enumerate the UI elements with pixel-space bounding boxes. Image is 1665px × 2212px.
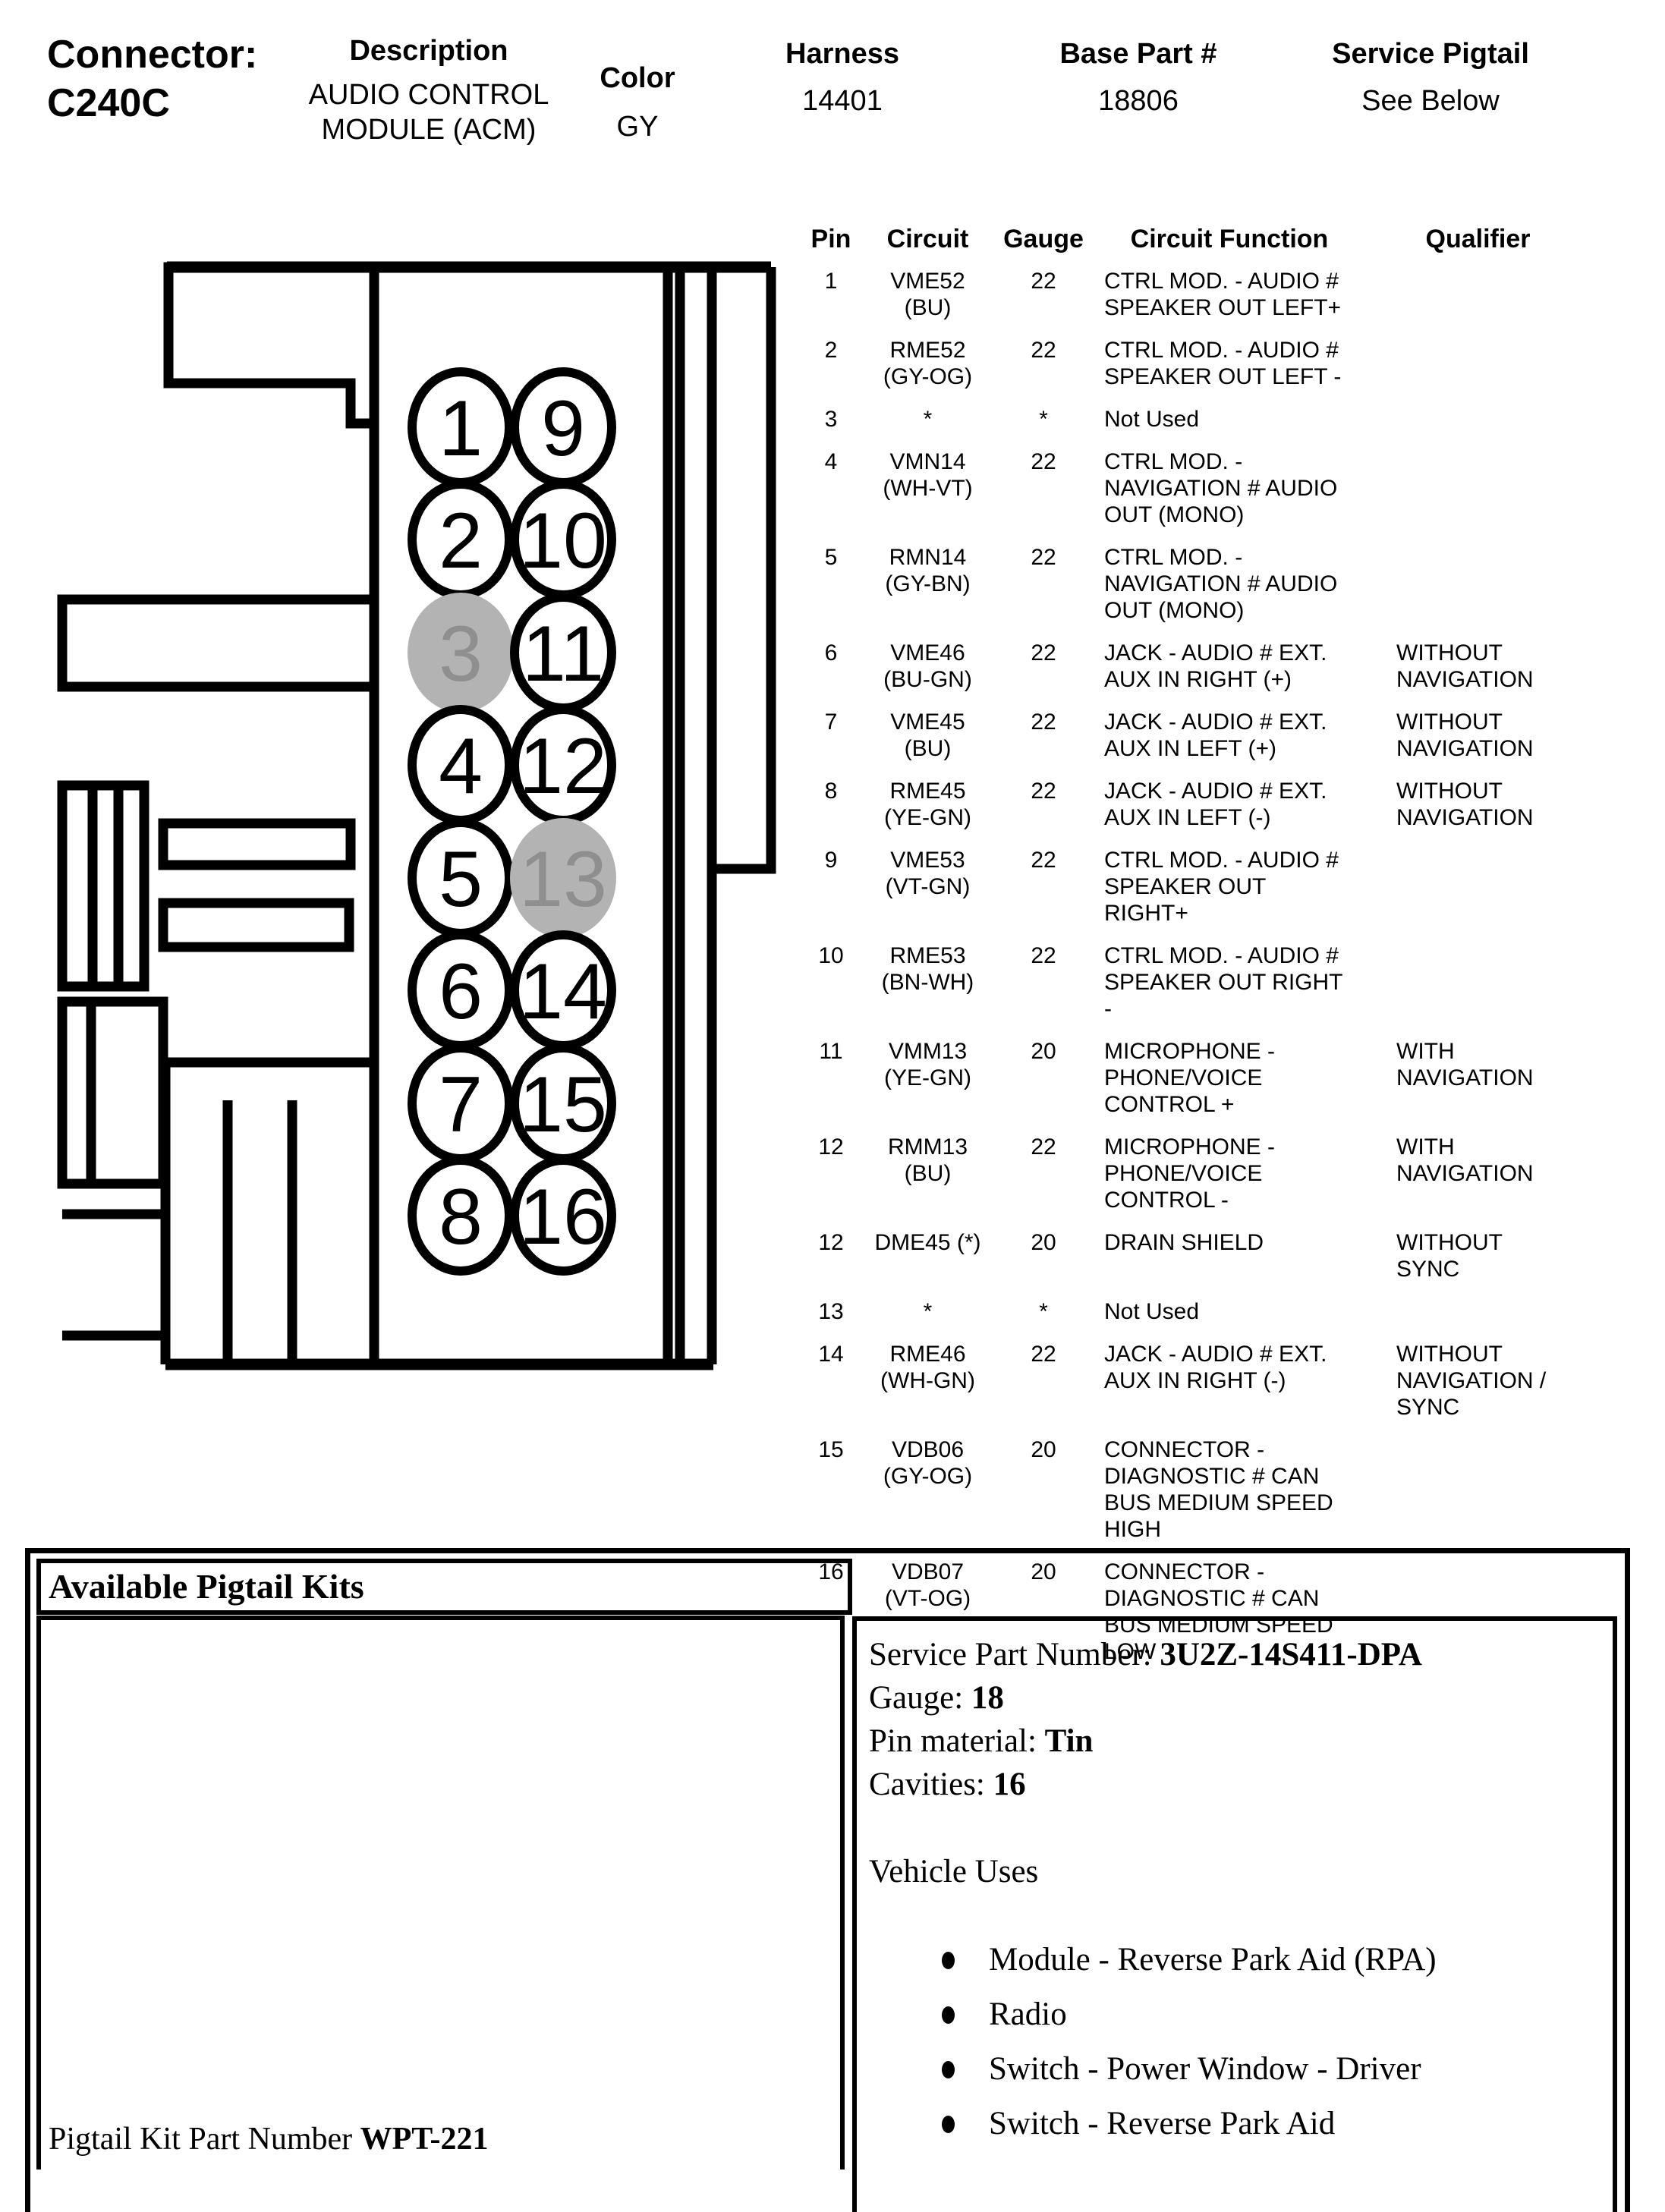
service-pigtail-value: See Below [1313, 83, 1548, 118]
vehicle-use-item: Radio [942, 1993, 1605, 2036]
header-field-service-pigtail: Service Pigtail See Below [1313, 36, 1548, 118]
pin-cell: 5 [801, 544, 861, 624]
pin-cell: 4 [801, 448, 861, 528]
pin-cell: 15 [801, 1436, 861, 1543]
function-cell: MICROPHONE - PHONE/VOICE CONTROL - [1104, 1134, 1355, 1213]
pin-number: 3 [439, 610, 483, 698]
harness-label: Harness [744, 36, 941, 71]
pin-cell: 2 [801, 337, 861, 390]
pigtail-kit-part-number-line: Pigtail Kit Part Number WPT-221 [49, 2121, 488, 2157]
qualifier-cell [1396, 337, 1560, 390]
gauge-cell: * [994, 406, 1093, 433]
color-value: GY [577, 109, 698, 144]
pin-cell: 8 [801, 778, 861, 831]
kit-part-number-value: WPT-221 [360, 2122, 489, 2157]
connector-title: Connector: C240C [47, 30, 257, 127]
detail-label: Cavities: [869, 1767, 993, 1802]
circuit-cell: VDB06(GY-OG) [861, 1436, 994, 1543]
pin-cell: 3 [801, 406, 861, 433]
base-part-label: Base Part # [1024, 36, 1252, 71]
pin-number: 14 [519, 948, 607, 1036]
col-header-gauge: Gauge [994, 226, 1093, 253]
function-cell: JACK - AUDIO # EXT. AUX IN LEFT (-) [1104, 778, 1355, 831]
detail-label: Pin material: [869, 1723, 1045, 1759]
pin-number: 8 [439, 1173, 483, 1261]
pin-number: 16 [519, 1173, 607, 1261]
gauge-cell: 22 [994, 448, 1093, 528]
pin-number: 10 [519, 497, 607, 585]
header-field-description: Description AUDIO CONTROL MODULE (ACM) [304, 33, 554, 147]
pin-cell: 6 [801, 640, 861, 693]
vehicle-use-item: Module - Reverse Park Aid (RPA) [942, 1939, 1605, 1981]
detail-value: 16 [993, 1767, 1026, 1802]
pin-table-row: 15VDB06(GY-OG)20CONNECTOR - DIAGNOSTIC #… [801, 1436, 1662, 1543]
qualifier-cell: WITHOUT NAVIGATION [1396, 778, 1560, 831]
header-field-harness: Harness 14401 [744, 36, 941, 118]
gauge-cell: 22 [994, 709, 1093, 762]
circuit-cell: * [861, 406, 994, 433]
circuit-cell: RME52(GY-OG) [861, 337, 994, 390]
pin-table-row: 2RME52(GY-OG)22CTRL MOD. - AUDIO # SPEAK… [801, 337, 1662, 390]
description-label: Description [304, 33, 554, 68]
pin-cavity-group: 12345678910111213141516 [408, 372, 616, 1271]
function-cell: CTRL MOD. - AUDIO # SPEAKER OUT RIGHT - [1104, 942, 1355, 1022]
qualifier-cell: WITHOUT NAVIGATION / SYNC [1396, 1341, 1560, 1421]
function-cell: CONNECTOR - DIAGNOSTIC # CAN BUS MEDIUM … [1104, 1436, 1355, 1543]
function-cell: Not Used [1104, 1298, 1355, 1325]
pin-cell: 7 [801, 709, 861, 762]
vehicle-use-item: Switch - Reverse Park Aid [942, 2103, 1605, 2145]
qualifier-cell [1396, 1436, 1560, 1543]
service-detail-line: Pin material: Tin [869, 1720, 1605, 1763]
col-header-pin: Pin [801, 226, 861, 253]
detail-label: Service Part Number: [869, 1637, 1160, 1672]
function-cell: JACK - AUDIO # EXT. AUX IN RIGHT (-) [1104, 1341, 1355, 1421]
harness-value: 14401 [744, 83, 941, 118]
service-detail-line: Gauge: 18 [869, 1676, 1605, 1720]
qualifier-cell [1396, 544, 1560, 624]
col-header-function: Circuit Function [1104, 226, 1355, 253]
header-field-color: Color GY [577, 61, 698, 144]
connector-label: Connector: [47, 30, 257, 79]
circuit-cell: * [861, 1298, 994, 1325]
circuit-cell: RMM13(BU) [861, 1134, 994, 1213]
function-cell: CTRL MOD. - NAVIGATION # AUDIO OUT (MONO… [1104, 544, 1355, 624]
function-cell: CTRL MOD. - AUDIO # SPEAKER OUT RIGHT+ [1104, 847, 1355, 927]
pin-number: 4 [439, 722, 483, 810]
qualifier-cell: WITHOUT NAVIGATION [1396, 640, 1560, 693]
circuit-cell: VMM13(YE-GN) [861, 1038, 994, 1118]
gauge-cell: 22 [994, 778, 1093, 831]
col-header-qualifier: Qualifier [1396, 226, 1560, 253]
circuit-cell: RME46(WH-GN) [861, 1341, 994, 1421]
pin-table-row: 1VME52(BU)22CTRL MOD. - AUDIO # SPEAKER … [801, 268, 1662, 321]
function-cell: CTRL MOD. - NAVIGATION # AUDIO OUT (MONO… [1104, 448, 1355, 528]
pin-number: 11 [522, 610, 604, 698]
detail-value: Tin [1045, 1723, 1094, 1759]
pin-table-row: 11VMM13(YE-GN)20MICROPHONE - PHONE/VOICE… [801, 1038, 1662, 1118]
qualifier-cell: WITH NAVIGATION [1396, 1038, 1560, 1118]
function-cell: JACK - AUDIO # EXT. AUX IN RIGHT (+) [1104, 640, 1355, 693]
gauge-cell: 22 [994, 544, 1093, 624]
pin-number: 2 [439, 497, 483, 585]
circuit-cell: RMN14(GY-BN) [861, 544, 994, 624]
pin-table-body: 1VME52(BU)22CTRL MOD. - AUDIO # SPEAKER … [801, 268, 1662, 1665]
pin-number: 13 [519, 835, 607, 924]
gauge-cell: 22 [994, 942, 1093, 1022]
pin-cell: 12 [801, 1229, 861, 1282]
pin-number: 6 [439, 948, 483, 1036]
circuit-cell: VMN14(WH-VT) [861, 448, 994, 528]
detail-label: Gauge: [869, 1680, 971, 1716]
qualifier-cell [1396, 268, 1560, 321]
circuit-cell: DME45 (*) [861, 1229, 994, 1282]
gauge-cell: 22 [994, 640, 1093, 693]
service-detail-line: Service Part Number: 3U2Z-14S411-DPA [869, 1633, 1605, 1676]
pigtail-kits-box: Pigtail Kit Part Number WPT-221 [36, 1616, 845, 2170]
qualifier-cell [1396, 1298, 1560, 1325]
color-label: Color [577, 61, 698, 96]
available-pigtail-kits-title: Available Pigtail Kits [36, 1559, 852, 1615]
qualifier-cell [1396, 942, 1560, 1022]
pin-table-row: 12RMM13(BU)22MICROPHONE - PHONE/VOICE CO… [801, 1134, 1662, 1213]
detail-value: 18 [971, 1680, 1004, 1716]
gauge-cell: 20 [994, 1229, 1093, 1282]
circuit-cell: VME46(BU-GN) [861, 640, 994, 693]
vehicle-uses-title: Vehicle Uses [869, 1850, 1605, 1893]
pin-cell: 10 [801, 942, 861, 1022]
qualifier-cell [1396, 448, 1560, 528]
gauge-cell: 22 [994, 1134, 1093, 1213]
service-part-box: Service Part Number: 3U2Z-14S411-DPAGaug… [852, 1616, 1617, 2212]
qualifier-cell: WITHOUT NAVIGATION [1396, 709, 1560, 762]
circuit-cell: VME45(BU) [861, 709, 994, 762]
qualifier-cell: WITH NAVIGATION [1396, 1134, 1560, 1213]
pin-number: 12 [519, 722, 607, 810]
gauge-cell: 20 [994, 1038, 1093, 1118]
pin-number: 15 [519, 1061, 607, 1149]
pin-table-row: 12DME45 (*)20DRAIN SHIELDWITHOUT SYNC [801, 1229, 1662, 1282]
pin-table-row: 5RMN14(GY-BN)22CTRL MOD. - NAVIGATION # … [801, 544, 1662, 624]
pin-number: 9 [541, 385, 585, 473]
function-cell: JACK - AUDIO # EXT. AUX IN LEFT (+) [1104, 709, 1355, 762]
gauge-cell: 22 [994, 337, 1093, 390]
connector-id: C240C [47, 79, 257, 127]
gauge-cell: 22 [994, 847, 1093, 927]
pin-cell: 1 [801, 268, 861, 321]
pin-table-row: 9VME53(VT-GN)22CTRL MOD. - AUDIO # SPEAK… [801, 847, 1662, 927]
gauge-cell: * [994, 1298, 1093, 1325]
function-cell: CTRL MOD. - AUDIO # SPEAKER OUT LEFT+ [1104, 268, 1355, 321]
pin-cell: 11 [801, 1038, 861, 1118]
description-value: AUDIO CONTROL MODULE (ACM) [304, 77, 554, 147]
header-field-base-part: Base Part # 18806 [1024, 36, 1252, 118]
pin-cell: 14 [801, 1341, 861, 1421]
pin-table-row: 13**Not Used [801, 1298, 1662, 1325]
function-cell: DRAIN SHIELD [1104, 1229, 1355, 1282]
pin-table-row: 14RME46(WH-GN)22JACK - AUDIO # EXT. AUX … [801, 1341, 1662, 1421]
col-header-circuit: Circuit [861, 226, 994, 253]
qualifier-cell [1396, 406, 1560, 433]
available-pigtail-kits-label: Available Pigtail Kits [49, 1567, 364, 1606]
vehicle-use-item: Switch - Power Window - Driver [942, 2048, 1605, 2091]
function-cell: Not Used [1104, 406, 1355, 433]
function-cell: CTRL MOD. - AUDIO # SPEAKER OUT LEFT - [1104, 337, 1355, 390]
circuit-cell: VME53(VT-GN) [861, 847, 994, 927]
base-part-value: 18806 [1024, 83, 1252, 118]
circuit-cell: RME45(YE-GN) [861, 778, 994, 831]
pin-table-row: 8RME45(YE-GN)22JACK - AUDIO # EXT. AUX I… [801, 778, 1662, 831]
service-part-details: Service Part Number: 3U2Z-14S411-DPAGaug… [869, 1633, 1605, 1806]
pin-table-row: 3**Not Used [801, 406, 1662, 433]
pin-table: Pin Circuit Gauge Circuit Function Quali… [801, 226, 1662, 1681]
gauge-cell: 22 [994, 1341, 1093, 1421]
gauge-cell: 20 [994, 1436, 1093, 1543]
circuit-cell: RME53(BN-WH) [861, 942, 994, 1022]
connector-datasheet-page: Connector: C240C Description AUDIO CONTR… [0, 0, 1665, 2212]
service-pigtail-label: Service Pigtail [1313, 36, 1548, 71]
pin-number: 1 [439, 385, 483, 473]
gauge-cell: 22 [994, 268, 1093, 321]
pin-cell: 13 [801, 1298, 861, 1325]
kit-part-number-label: Pigtail Kit Part Number [49, 2122, 352, 2157]
pin-table-row: 6VME46(BU-GN)22JACK - AUDIO # EXT. AUX I… [801, 640, 1662, 693]
service-detail-line: Cavities: 16 [869, 1763, 1605, 1806]
pin-cell: 9 [801, 847, 861, 927]
vehicle-uses-list: Module - Reverse Park Aid (RPA)RadioSwit… [869, 1939, 1605, 2145]
qualifier-cell: WITHOUT SYNC [1396, 1229, 1560, 1282]
pin-number: 7 [439, 1061, 483, 1149]
pin-cell: 12 [801, 1134, 861, 1213]
connector-diagram: 12345678910111213141516 [0, 250, 812, 1533]
qualifier-cell [1396, 847, 1560, 927]
detail-value: 3U2Z-14S411-DPA [1160, 1637, 1422, 1672]
pin-table-row: 10RME53(BN-WH)22CTRL MOD. - AUDIO # SPEA… [801, 942, 1662, 1022]
pin-table-row: 4VMN14(WH-VT)22CTRL MOD. - NAVIGATION # … [801, 448, 1662, 528]
pin-table-header: Pin Circuit Gauge Circuit Function Quali… [801, 226, 1662, 253]
circuit-cell: VME52(BU) [861, 268, 994, 321]
function-cell: MICROPHONE - PHONE/VOICE CONTROL + [1104, 1038, 1355, 1118]
pin-number: 5 [439, 835, 483, 924]
pin-table-row: 7VME45(BU)22JACK - AUDIO # EXT. AUX IN L… [801, 709, 1662, 762]
